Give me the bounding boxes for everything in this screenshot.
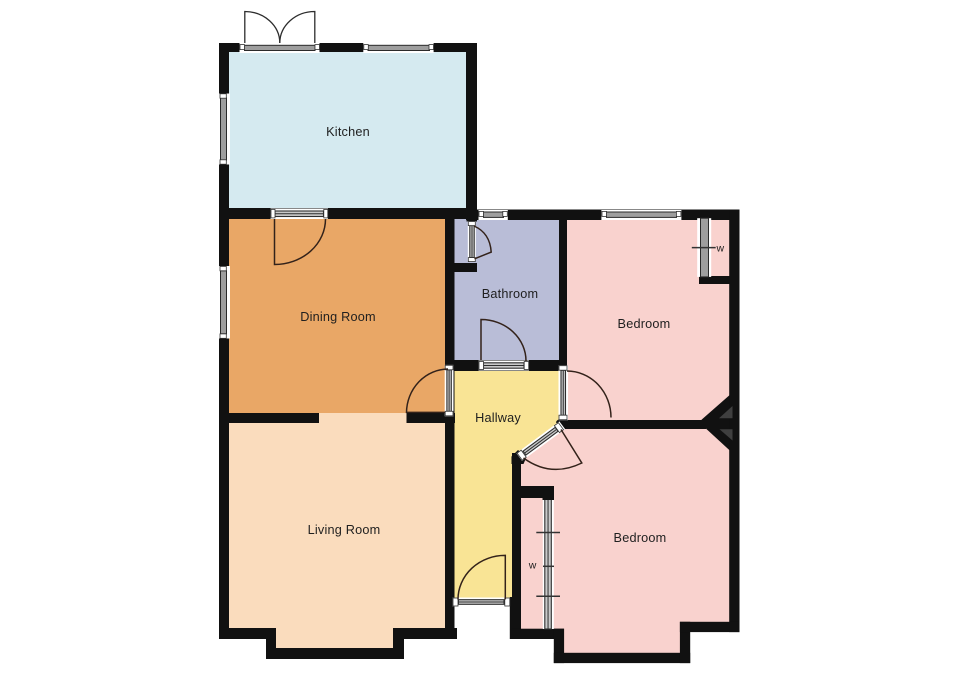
svg-text:Living Room: Living Room <box>308 523 381 537</box>
svg-text:w: w <box>716 243 725 255</box>
svg-text:Bathroom: Bathroom <box>482 287 539 301</box>
svg-text:Kitchen: Kitchen <box>326 125 370 139</box>
svg-text:Bedroom: Bedroom <box>614 531 667 545</box>
svg-text:w: w <box>528 560 537 572</box>
svg-text:Dining Room: Dining Room <box>300 310 376 324</box>
svg-text:Hallway: Hallway <box>475 411 521 425</box>
svg-text:Bedroom: Bedroom <box>618 317 671 331</box>
